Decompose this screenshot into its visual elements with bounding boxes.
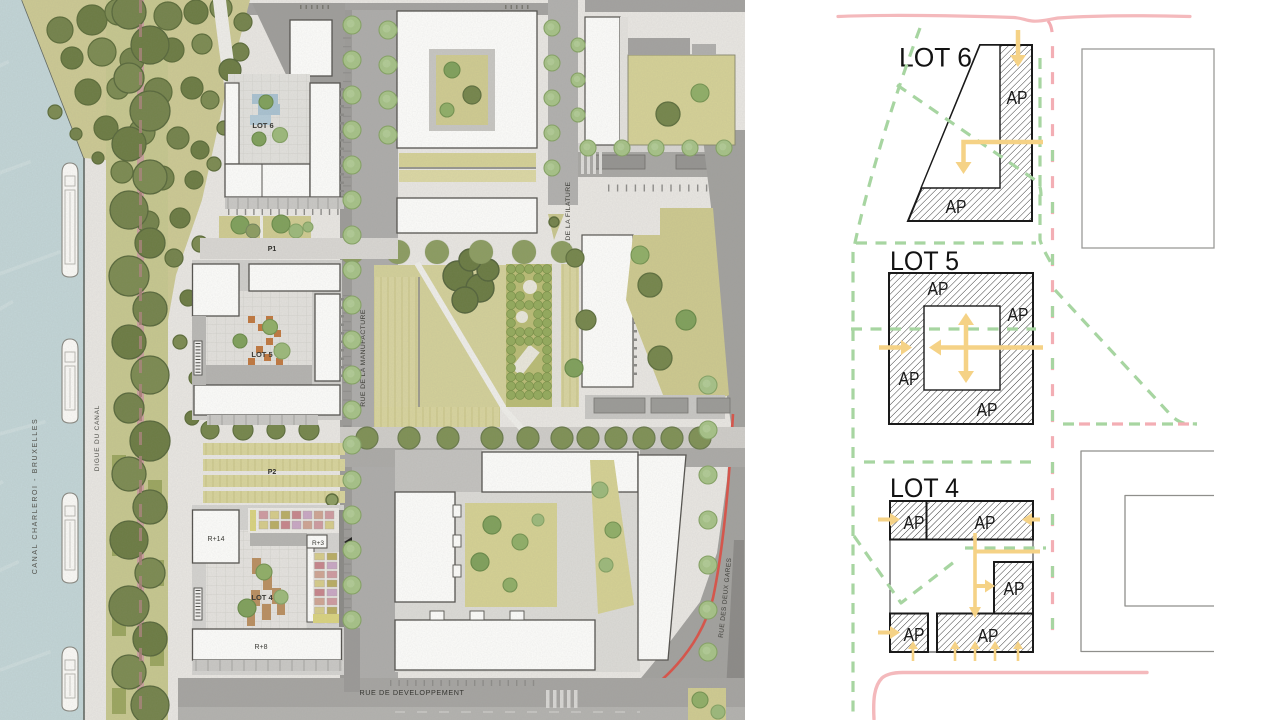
svg-text:AP: AP <box>946 197 967 217</box>
svg-text:LOT 5: LOT 5 <box>890 246 959 276</box>
svg-text:LOT 4: LOT 4 <box>890 473 959 503</box>
svg-text:AP: AP <box>1004 579 1025 599</box>
svg-text:AP: AP <box>977 400 998 420</box>
svg-text:AP: AP <box>928 279 949 299</box>
svg-text:AP: AP <box>899 369 920 389</box>
svg-text:AP: AP <box>1007 88 1028 108</box>
svg-text:LOT 6: LOT 6 <box>899 43 972 73</box>
svg-text:AP: AP <box>1008 305 1029 325</box>
svg-text:AP: AP <box>904 625 925 645</box>
svg-text:AP: AP <box>975 513 996 533</box>
svg-text:AP: AP <box>904 513 925 533</box>
